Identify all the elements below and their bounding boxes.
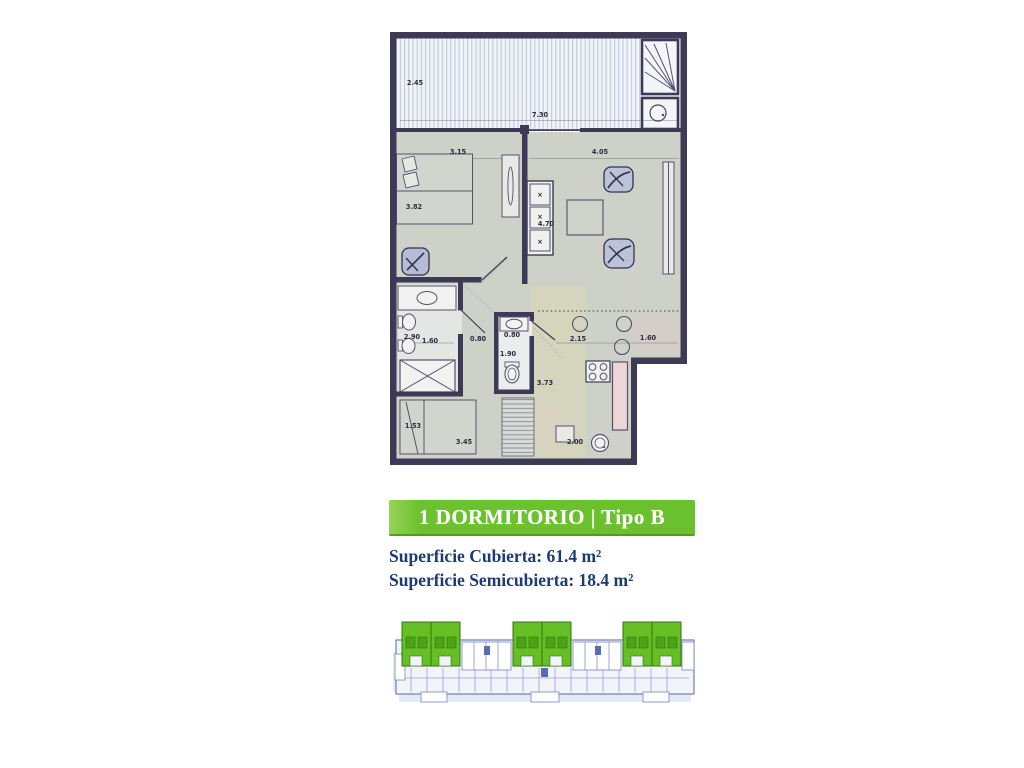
sideboard (663, 162, 674, 274)
floor-plan: × × × (390, 28, 690, 470)
dimension-label: 2.15 (570, 335, 587, 343)
dimension-label: 1.60 (640, 334, 657, 342)
round-sink (592, 435, 609, 452)
dimension-label: 7.30 (532, 111, 549, 119)
wardrobe (502, 155, 519, 217)
svg-text:×: × (537, 191, 543, 199)
kitchen-cabinets: × × × (527, 181, 553, 255)
brochure-page: × × × (0, 0, 1024, 768)
dimension-label: 1.53 (405, 422, 422, 430)
covered-area-text: Superficie Cubierta: 61.4 m² (389, 544, 709, 568)
dimension-label: 3.82 (406, 203, 423, 211)
svg-text:×: × (537, 238, 543, 246)
bed-double (397, 154, 473, 224)
dimension-label: 2.90 (404, 333, 421, 341)
bathroom-sink (398, 286, 456, 310)
building-key-plan (393, 620, 697, 708)
toilet (398, 314, 416, 330)
dimension-label: 3.15 (450, 148, 467, 156)
dimension-label: 3.73 (537, 379, 554, 387)
powder-room-toilet (505, 362, 519, 383)
kitchen-counter (613, 362, 628, 430)
bedroom-armchair (402, 248, 429, 275)
surface-areas: Superficie Cubierta: 61.4 m² Superficie … (389, 544, 709, 592)
dimension-label: 2.45 (407, 79, 424, 87)
shower (400, 360, 455, 392)
armchair-top (604, 167, 633, 192)
dimension-label: 2.00 (567, 438, 584, 446)
water-tank-box (642, 98, 678, 129)
unit-type-banner: 1 DORMITORIO | Tipo B (389, 500, 695, 536)
dimension-label: 0.80 (504, 331, 521, 339)
powder-room-sink (500, 317, 528, 331)
stairs-hatch (502, 398, 534, 456)
stove (586, 361, 610, 382)
dimension-label: 1.90 (500, 350, 517, 358)
unit-type-label: 1 DORMITORIO | Tipo B (419, 505, 665, 530)
dimension-label: 3.45 (456, 438, 473, 446)
stair-box (642, 40, 678, 94)
dimension-label: 1.60 (422, 337, 439, 345)
dimension-label: 0.80 (470, 335, 487, 343)
living-table (567, 200, 603, 235)
dimension-label: 4.70 (538, 220, 555, 228)
highlighted-units (402, 622, 681, 666)
dimension-label: 4.05 (592, 148, 609, 156)
semicovered-area-text: Superficie Semicubierta: 18.4 m² (389, 568, 709, 592)
armchair-bottom (604, 239, 634, 268)
